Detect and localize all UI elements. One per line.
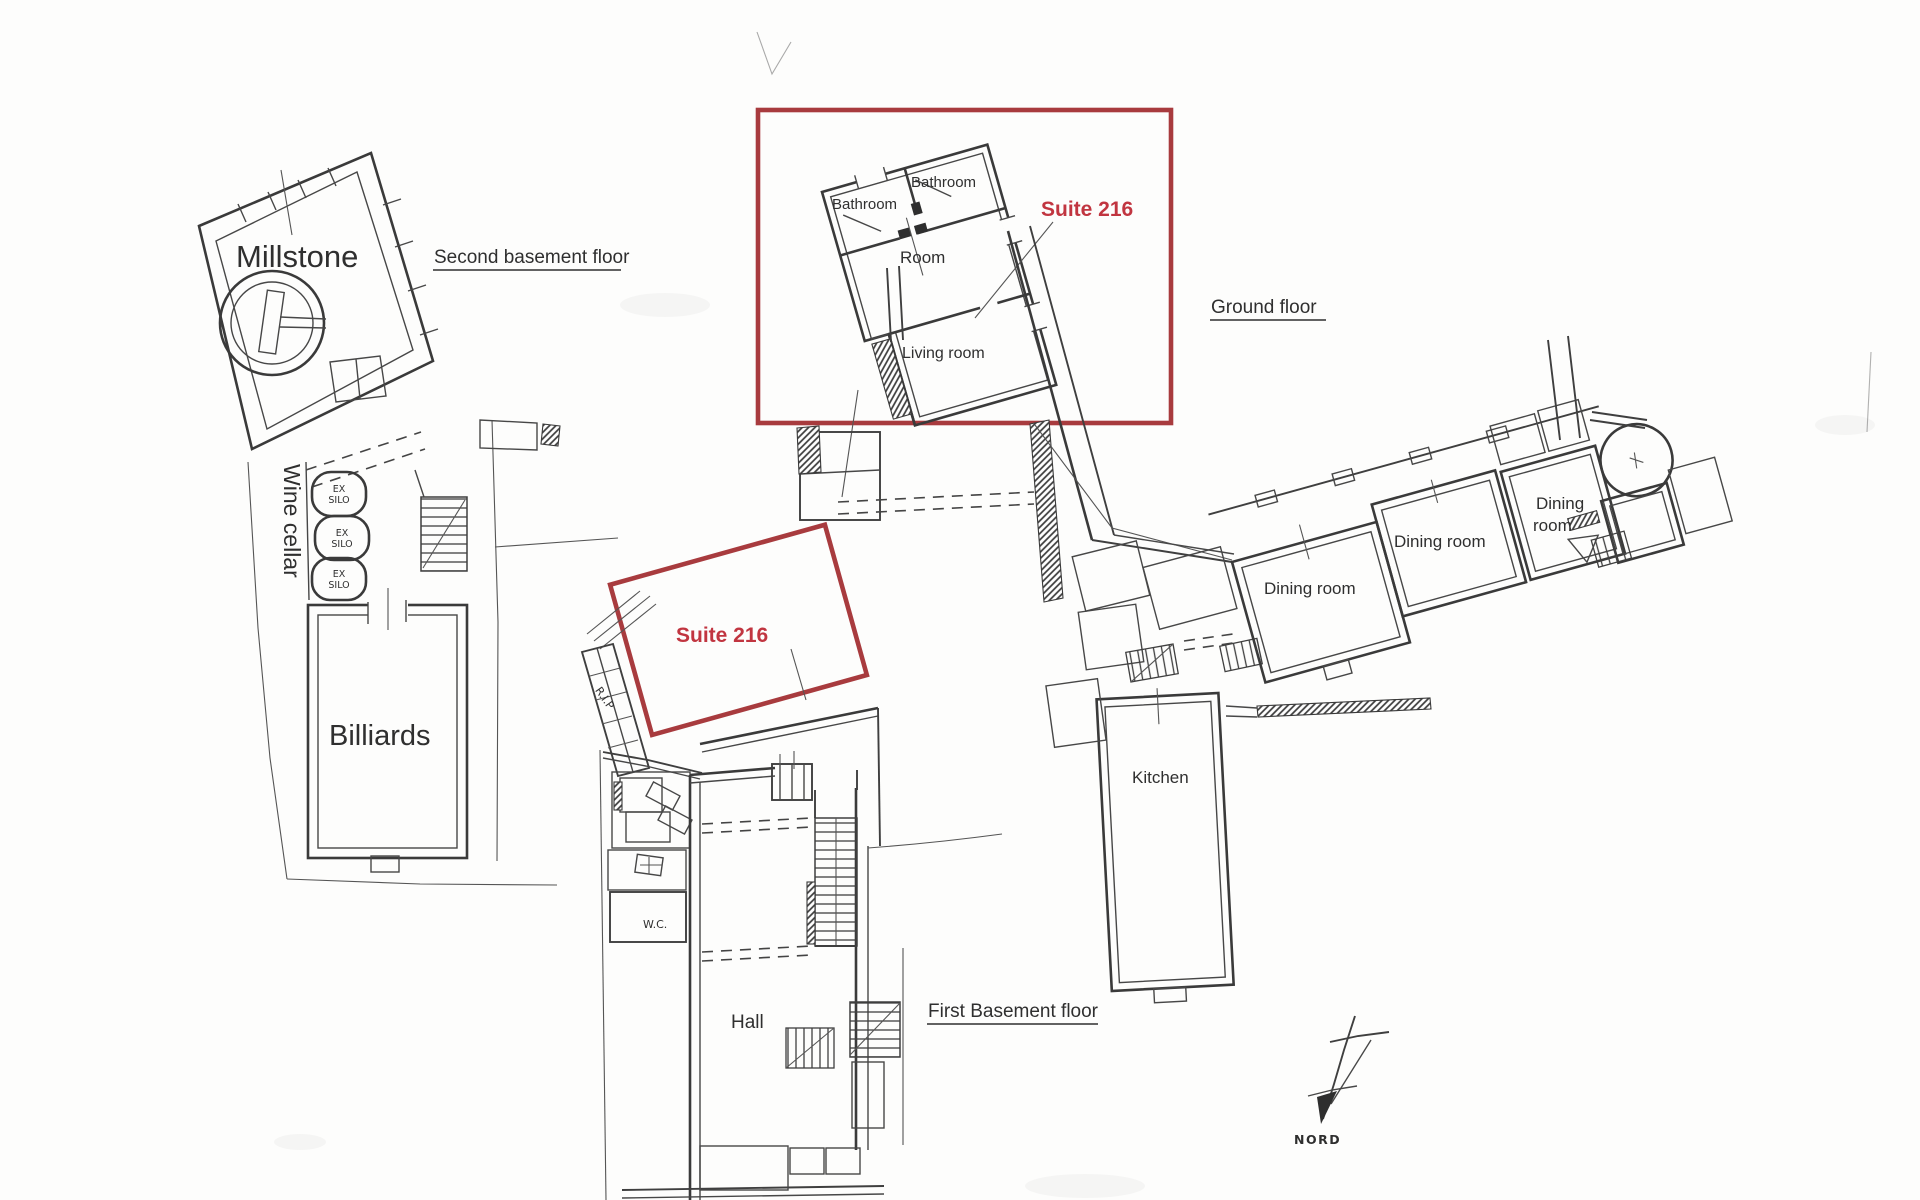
rubble-wall bbox=[797, 426, 821, 474]
millstone-icon bbox=[220, 271, 326, 375]
paper-smudge bbox=[620, 293, 710, 317]
compass-arrowhead-icon bbox=[1317, 1091, 1337, 1124]
small-room bbox=[1143, 547, 1237, 630]
suite-216-label-ground: Suite 216 bbox=[1041, 198, 1133, 221]
north-compass: NORD bbox=[1294, 1016, 1389, 1147]
room-label-dining-2: Dining room bbox=[1394, 532, 1486, 551]
first-basement-cluster: Suite 216 R.I.P bbox=[582, 525, 1099, 1200]
boundary-curve bbox=[868, 834, 1002, 848]
wall-segment bbox=[842, 390, 858, 497]
floor-title-second-basement: Second basement floor bbox=[434, 247, 630, 268]
room-label-kitchen: Kitchen bbox=[1132, 768, 1189, 787]
dashed-beam bbox=[702, 946, 812, 961]
floor-title-ground: Ground floor bbox=[1211, 297, 1317, 318]
floor-plan-drawing: EX SILO EX SILO EX SILO Millstone Second… bbox=[0, 0, 1920, 1200]
site-boundary-bottom bbox=[287, 879, 557, 885]
barrel-label: EX bbox=[333, 569, 346, 580]
dashed-wall bbox=[306, 432, 421, 470]
wine-barrels: EX SILO EX SILO EX SILO bbox=[312, 472, 369, 600]
floor-plan-page: EX SILO EX SILO EX SILO Millstone Second… bbox=[0, 0, 1920, 1200]
wall-segment bbox=[1226, 706, 1257, 717]
door-jamb bbox=[914, 223, 928, 235]
barrel-label: EX bbox=[333, 484, 346, 495]
ground-floor-cluster: Bathroom Bathroom Room Living room Suite… bbox=[758, 110, 1744, 1005]
small-cell bbox=[480, 420, 537, 450]
rubble-wall bbox=[1030, 420, 1063, 602]
dashed-beam bbox=[702, 818, 812, 833]
room-label-bathroom-left: Bathroom bbox=[832, 196, 897, 213]
site-boundary-right bbox=[492, 420, 498, 861]
small-cell bbox=[330, 356, 386, 402]
hall-block: W.C. bbox=[600, 750, 1002, 1200]
fixture bbox=[646, 782, 680, 810]
corridor-wall bbox=[1548, 336, 1580, 440]
wc-label: W.C. bbox=[643, 918, 667, 931]
wall-segment bbox=[878, 708, 880, 846]
suite-216-highlight-ground bbox=[758, 110, 1171, 423]
floor-title-first-basement: First Basement floor bbox=[928, 1001, 1099, 1022]
wc-room bbox=[610, 892, 686, 942]
room-label-dining-1: Dining room bbox=[1264, 579, 1356, 598]
staircase bbox=[850, 1002, 900, 1057]
staircase bbox=[421, 497, 467, 571]
room-label-hall: Hall bbox=[731, 1012, 764, 1033]
room-label-dining-3-line2: room bbox=[1533, 516, 1572, 535]
small-room bbox=[1538, 400, 1590, 452]
room-label-millstone: Millstone bbox=[236, 239, 358, 274]
stray-mark bbox=[757, 32, 791, 74]
corridor-line bbox=[495, 538, 618, 547]
kitchen-room bbox=[1096, 685, 1234, 1005]
wing-boundary bbox=[1035, 425, 1232, 560]
small-room bbox=[826, 1148, 860, 1174]
room-label-room: Room bbox=[900, 248, 945, 267]
door-tab bbox=[1323, 659, 1352, 679]
wall-segment bbox=[1590, 412, 1647, 428]
rubble-wall bbox=[541, 424, 560, 446]
room-label-bathroom-right: Bathroom bbox=[911, 174, 976, 191]
barrel-label: SILO bbox=[328, 580, 349, 591]
rubble-wall bbox=[1568, 511, 1600, 531]
small-room bbox=[1072, 541, 1150, 611]
room-label-wine-cellar: Wine cellar bbox=[279, 464, 305, 578]
main-staircase bbox=[807, 770, 857, 946]
north-label: NORD bbox=[1294, 1132, 1341, 1147]
barrel-label: SILO bbox=[331, 539, 352, 550]
door-jamb bbox=[911, 202, 923, 216]
small-room bbox=[790, 1148, 824, 1174]
small-room bbox=[612, 772, 690, 848]
barrel-label: EX bbox=[336, 528, 349, 539]
barrel-label: SILO bbox=[328, 495, 349, 506]
rip-corridor bbox=[582, 644, 670, 842]
millstone-tower bbox=[199, 153, 438, 449]
second-basement-cluster: EX SILO EX SILO EX SILO Millstone Second… bbox=[199, 153, 630, 885]
site-boundary bbox=[600, 750, 606, 1200]
dashed-wall bbox=[838, 492, 1034, 514]
room-label-billiards: Billiards bbox=[329, 720, 431, 752]
small-room bbox=[1490, 414, 1545, 465]
compass-crossbar bbox=[1330, 1032, 1389, 1042]
staircase bbox=[1126, 644, 1178, 682]
fixture bbox=[658, 806, 692, 834]
staircase bbox=[786, 1028, 834, 1068]
paper-smudge bbox=[1815, 415, 1875, 435]
small-room bbox=[700, 1146, 788, 1190]
room-label-dining-3-line1: Dining bbox=[1536, 494, 1584, 513]
paper-smudge bbox=[1025, 1174, 1145, 1198]
rubble-wall bbox=[1257, 698, 1431, 717]
room-label-living-room: Living room bbox=[902, 345, 985, 362]
paper-smudge bbox=[274, 1134, 326, 1150]
suite-216-label-basement: Suite 216 bbox=[676, 624, 768, 647]
dashed-wall bbox=[312, 449, 425, 487]
